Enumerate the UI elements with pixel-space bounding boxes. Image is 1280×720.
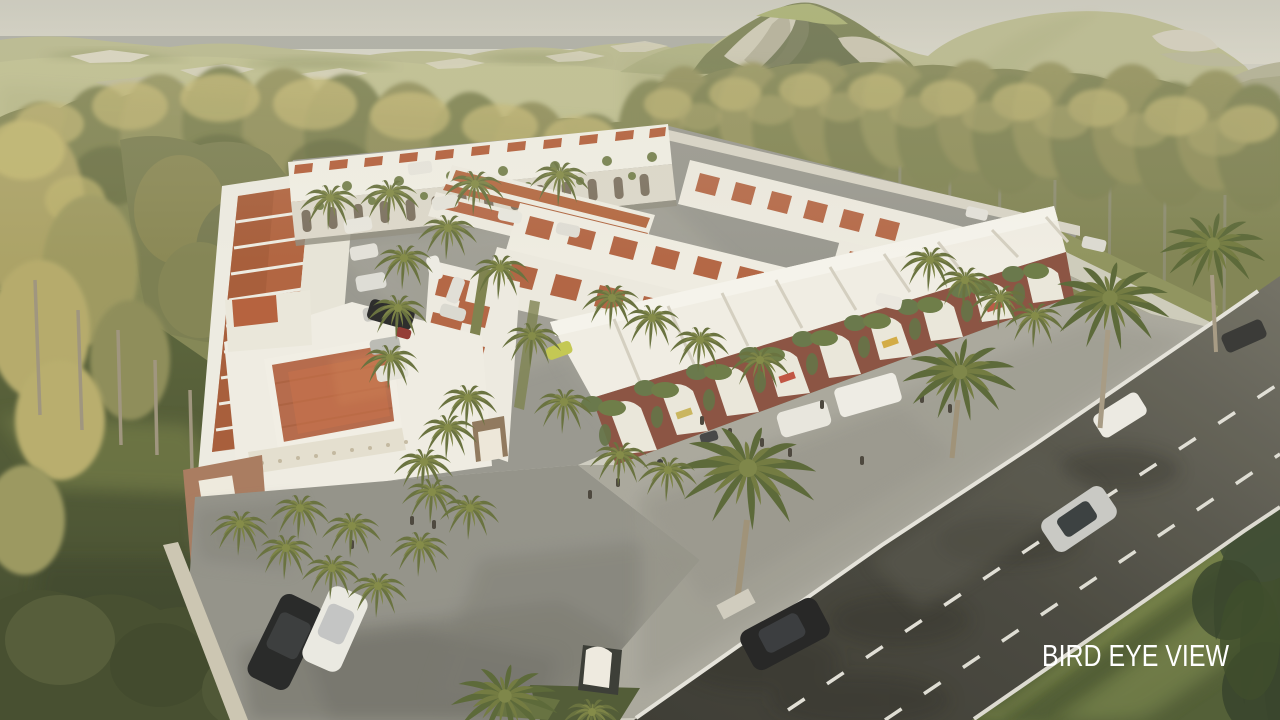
svg-text:BIRD EYE VIEW: BIRD EYE VIEW — [1042, 638, 1230, 673]
